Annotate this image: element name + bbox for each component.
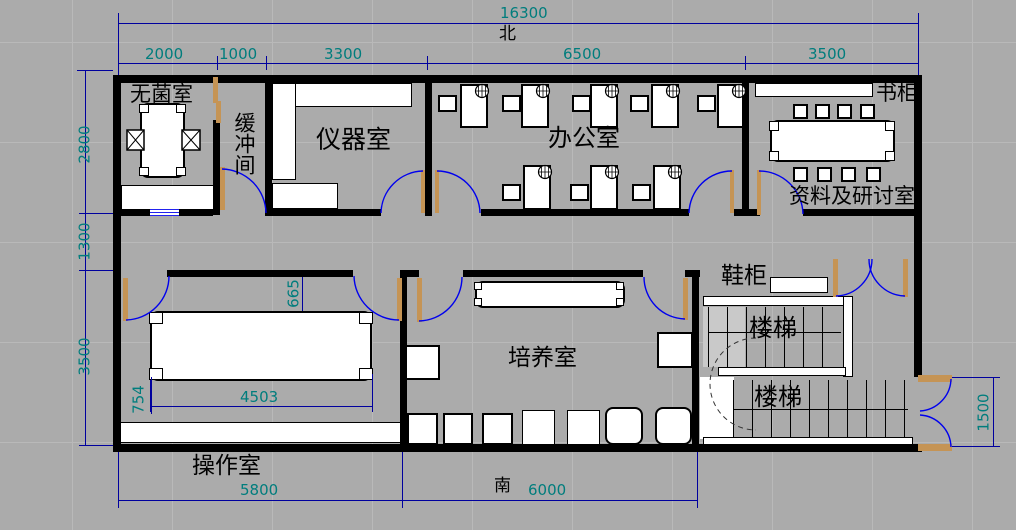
room-label-instrument: 仪器室 (316, 127, 391, 153)
dim-top-seg-4: 3500 (808, 47, 846, 62)
dim-left-seg-2: 3500 (78, 334, 93, 380)
dim-top-seg-3: 6500 (563, 47, 601, 62)
dim-bottom-seg-0: 5800 (240, 483, 278, 498)
dim-tick (372, 374, 373, 412)
dim-op-table-offset: 754 (132, 377, 147, 423)
room-label-operation: 操作室 (192, 454, 261, 478)
dim-entry-door: 1500 (977, 390, 992, 436)
dim-line-total (118, 23, 918, 24)
dim-top-seg-1: 1000 (219, 47, 257, 62)
dim-total-width: 16300 (500, 6, 548, 21)
stair-direction-arc (710, 338, 756, 430)
overlay-graphics (0, 0, 1016, 530)
dim-tick (79, 270, 113, 271)
dim-ext (952, 446, 1000, 447)
dim-tick (79, 213, 113, 214)
dim-ext (118, 452, 119, 508)
compass-north: 北 (499, 26, 516, 44)
pass-box-icon (127, 130, 200, 150)
room-label-seminar: 资料及研讨室 (789, 185, 915, 207)
dim-line-top-segments (118, 63, 918, 64)
dim-left-seg-1: 1300 (78, 219, 93, 265)
dim-tick (427, 56, 428, 70)
dim-tick (745, 56, 746, 70)
room-label-culture: 培养室 (508, 346, 577, 370)
dim-left-seg-0: 2800 (78, 122, 93, 168)
dim-tick (79, 445, 113, 446)
room-label-office: 办公室 (548, 126, 620, 151)
dim-line-bottom (118, 500, 698, 501)
dim-ext (697, 452, 698, 508)
dim-tick (77, 70, 113, 71)
dim-op-table-width: 4503 (240, 390, 278, 405)
dim-line-right (993, 377, 994, 447)
room-label-shoe-cabinet: 鞋柜 (721, 264, 767, 288)
compass-south: 南 (494, 478, 511, 496)
dim-op-door-offset: 665 (287, 271, 302, 317)
room-label-stairs-upper: 楼梯 (749, 316, 797, 341)
dim-ext-right (918, 13, 919, 75)
dim-top-seg-0: 2000 (145, 47, 183, 62)
room-label-sterile: 无菌室 (130, 83, 193, 105)
dim-ext-left (118, 13, 119, 75)
dim-line-op-table (150, 406, 372, 407)
dim-top-seg-2: 3300 (324, 47, 362, 62)
floor-plan-canvas: 16300 北 2000 1000 3300 6500 3500 2800 13… (0, 0, 1016, 530)
dim-ext (402, 452, 403, 508)
room-label-stairs-lower: 楼梯 (754, 385, 802, 410)
dim-line-op-offset (151, 377, 152, 414)
dim-tick (217, 56, 218, 70)
room-label-buffer: 缓冲间 (233, 112, 255, 192)
dim-tick (266, 56, 267, 70)
dim-ext (952, 377, 1000, 378)
dim-bottom-seg-1: 6000 (528, 483, 566, 498)
